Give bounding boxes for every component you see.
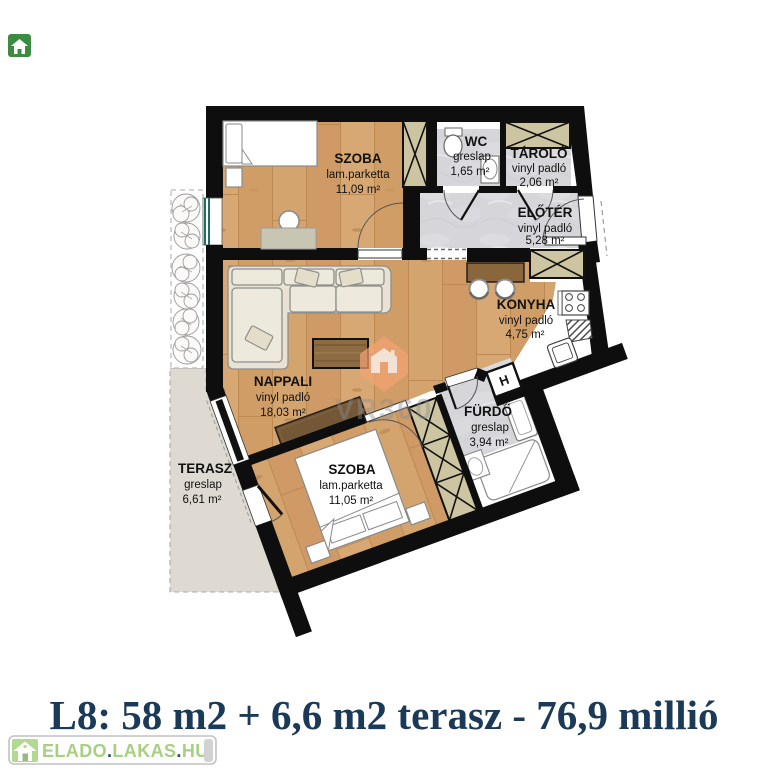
svg-text:FÜRDŐ: FÜRDŐ	[464, 404, 512, 419]
svg-text:18,03 m²: 18,03 m²	[260, 407, 306, 419]
svg-text:lam.parketta: lam.parketta	[326, 169, 390, 181]
svg-text:greslap: greslap	[471, 422, 509, 434]
svg-text:2,06 m²: 2,06 m²	[520, 177, 559, 189]
svg-text:vinyl padló: vinyl padló	[512, 163, 566, 175]
svg-text:SZOBA: SZOBA	[328, 462, 376, 477]
svg-text:11,05 m²: 11,05 m²	[329, 495, 374, 507]
svg-text:greslap: greslap	[453, 151, 491, 163]
svg-text:5,28 m²: 5,28 m²	[526, 235, 565, 247]
svg-text:ELŐTÉR: ELŐTÉR	[518, 205, 573, 220]
svg-text:WC: WC	[465, 134, 488, 149]
svg-text:11,09 m²: 11,09 m²	[336, 184, 381, 196]
svg-text:TERASZ: TERASZ	[178, 461, 232, 476]
svg-text:KONYHA: KONYHA	[497, 297, 556, 312]
svg-text:lam.parketta: lam.parketta	[319, 480, 383, 492]
svg-text:4,75 m²: 4,75 m²	[506, 329, 545, 341]
svg-text:6,61 m²: 6,61 m²	[183, 494, 222, 506]
svg-text:VR360: VR360	[335, 394, 434, 426]
svg-text:vinyl padló: vinyl padló	[499, 315, 553, 327]
svg-text:greslap: greslap	[184, 479, 222, 491]
svg-text:3,94 m²: 3,94 m²	[470, 437, 509, 449]
svg-text:vinyl padló: vinyl padló	[518, 223, 572, 235]
svg-text:NAPPALI: NAPPALI	[254, 374, 312, 389]
svg-text:TÁROLÓ: TÁROLÓ	[511, 146, 568, 161]
svg-text:ELADO.LAKAS.HU: ELADO.LAKAS.HU	[42, 741, 209, 761]
svg-text:SZOBA: SZOBA	[334, 151, 382, 166]
svg-text:L8: 58 m2 + 6,6 m2 terasz - 76: L8: 58 m2 + 6,6 m2 terasz - 76,9 millió	[50, 692, 719, 738]
svg-text:vinyl padló: vinyl padló	[256, 392, 310, 404]
svg-text:1,65 m²: 1,65 m²	[451, 166, 490, 178]
